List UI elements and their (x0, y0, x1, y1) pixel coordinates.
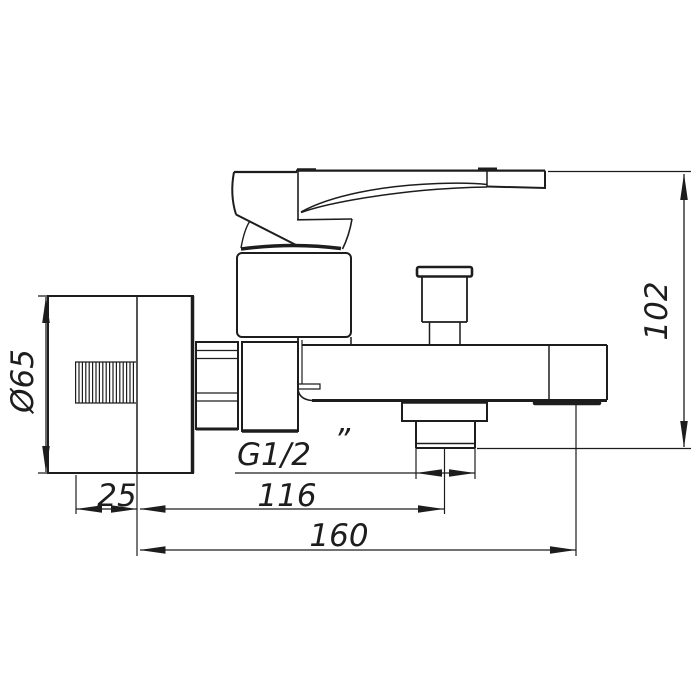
arrow-right-spout-reach (550, 546, 576, 554)
ext-thread-od (416, 448, 475, 479)
lever-handle (232, 168, 545, 250)
label-body-height: 102 (639, 281, 675, 340)
arrow-up-body-height (680, 174, 688, 201)
flange-outline (48, 296, 193, 473)
knob-cap (417, 267, 472, 277)
shower-outlet (402, 402, 487, 448)
block-fillet (298, 389, 312, 401)
technical-drawing-canvas: Ø65 25 G1/2 ” 116 160 102 (0, 0, 700, 700)
arrow-left-thread (416, 469, 442, 477)
nut-outline (196, 342, 238, 429)
label-thread-inch-mark: ” (334, 423, 351, 459)
nut-facet-lines (196, 351, 238, 402)
faucet-dimension-drawing: Ø65 25 G1/2 ” 116 160 102 (0, 0, 700, 700)
dimension-labels: Ø65 25 G1/2 ” 116 160 102 (5, 281, 675, 554)
arrow-left-outlet-distance (140, 505, 166, 513)
inlet-block-outline (242, 342, 298, 431)
housing-outline (237, 253, 351, 337)
wall-flange (48, 296, 193, 473)
block-step-tab (298, 384, 320, 389)
body-inlet-block (242, 337, 320, 431)
lever-tip-end (487, 171, 545, 188)
arrow-down-body-height (680, 421, 688, 448)
main-body-bar (302, 337, 607, 403)
union-nut (196, 342, 238, 429)
outlet-flange (402, 402, 487, 421)
arrow-left-spout-reach (140, 546, 166, 554)
arrow-right-thread (449, 469, 475, 477)
label-spout-reach: 160 (309, 518, 368, 554)
dimension-lines (42, 174, 688, 554)
arrow-right-outlet-distance (418, 505, 444, 513)
pivot-dome-top (297, 219, 352, 220)
knob-body (422, 277, 467, 323)
label-thread-size: G1/2 (237, 437, 311, 473)
pivot-dome-right (343, 219, 353, 249)
housing-rim (241, 246, 341, 249)
pivot-dome-left (241, 221, 250, 248)
cap-left-edge (232, 172, 236, 215)
diverter-knob (417, 267, 472, 345)
label-outlet-distance: 116 (257, 478, 316, 514)
knob-stem (430, 322, 461, 345)
lever-top-tab (478, 168, 497, 172)
cartridge-housing (237, 246, 351, 337)
label-flange-offset: 25 (97, 478, 136, 514)
label-flange-diameter: Ø65 (5, 349, 41, 415)
